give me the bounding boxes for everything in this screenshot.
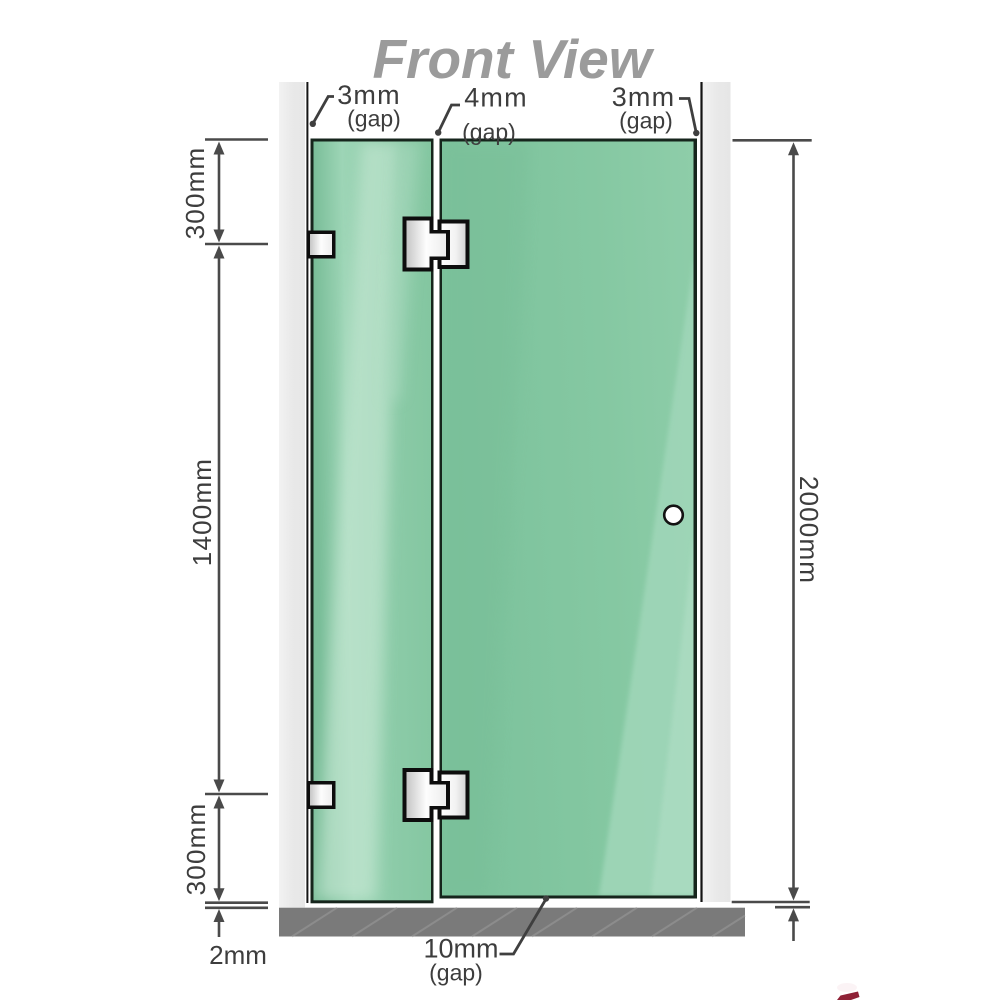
- svg-text:2mm: 2mm: [209, 940, 267, 970]
- svg-text:(gap): (gap): [619, 108, 673, 134]
- svg-text:300mm: 300mm: [181, 803, 211, 896]
- svg-text:300mm: 300mm: [180, 147, 210, 240]
- svg-text:(gap): (gap): [347, 106, 401, 132]
- svg-text:4mm: 4mm: [464, 83, 528, 113]
- svg-text:(gap): (gap): [462, 119, 516, 145]
- svg-text:2000mm: 2000mm: [794, 476, 824, 584]
- svg-text:(gap): (gap): [429, 960, 483, 986]
- svg-text:Front View: Front View: [372, 28, 654, 90]
- svg-text:1400mm: 1400mm: [187, 458, 217, 566]
